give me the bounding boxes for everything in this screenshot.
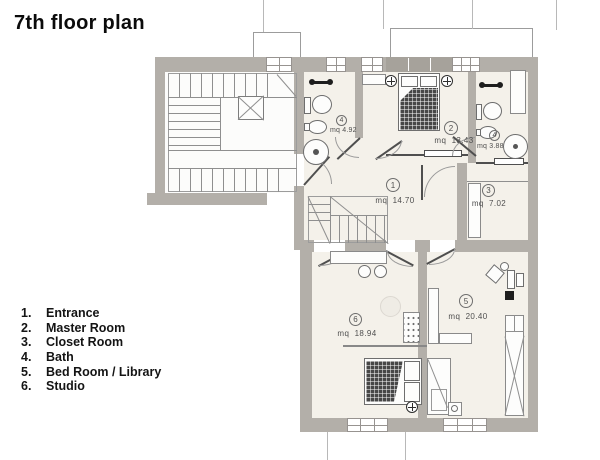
legend-item: 5. Bed Room / Library	[21, 364, 161, 379]
pillow-icon	[420, 76, 437, 87]
pillow-icon	[401, 76, 418, 87]
stair-tread	[190, 73, 191, 97]
bidet-icon	[308, 120, 327, 134]
terrace-railing	[390, 28, 533, 58]
balcony-door-mullion	[430, 58, 431, 71]
ceiling-lamp-icon	[385, 75, 397, 87]
floor-plan-page: 1 mq 14.70 2 mq 13.43 3 mq 7.02 4 mq 4.9…	[0, 0, 600, 460]
stair-tread	[168, 137, 220, 138]
stair-tread	[223, 168, 224, 192]
stair-tread	[256, 73, 257, 97]
stair-tread	[212, 73, 213, 97]
sink-drain-icon	[513, 144, 518, 149]
wall	[155, 72, 165, 205]
stair-tread	[234, 73, 235, 97]
stair-tread	[245, 168, 246, 192]
room-area-label: mq 4.92	[330, 127, 356, 134]
window-mullion	[360, 419, 361, 431]
legend-item-label: Master Room	[46, 321, 125, 335]
wall	[312, 418, 528, 432]
stair-tread	[223, 73, 224, 97]
legend-item-number: 1.	[21, 306, 46, 320]
window-mullion	[336, 58, 337, 71]
toilet-icon	[476, 104, 482, 120]
legend-item-number: 5.	[21, 365, 46, 379]
stair-tread	[168, 121, 220, 122]
room-area-label: mq 20.40	[444, 312, 492, 321]
wall	[528, 57, 538, 432]
shower-drain-icon	[313, 149, 319, 155]
desk-icon	[343, 345, 427, 347]
partition-line	[476, 162, 494, 164]
window	[347, 418, 388, 432]
stair-landing-line	[168, 97, 297, 98]
stair-tread	[348, 215, 349, 243]
chair-icon	[374, 265, 387, 278]
cabinet-icon	[362, 74, 386, 85]
legend-item-number: 3.	[21, 335, 46, 349]
table-icon	[380, 296, 401, 317]
window-mullion	[470, 58, 471, 71]
toilet-icon	[304, 97, 311, 114]
room-area-label: mq 13.43	[432, 136, 476, 145]
dimension-line	[556, 0, 557, 30]
wall	[147, 193, 267, 205]
wall	[455, 240, 528, 252]
window	[443, 418, 487, 432]
wall	[457, 163, 467, 240]
room-area-label: mq 14.70	[371, 196, 419, 205]
bookshelf-icon	[439, 333, 472, 344]
window-mullion	[372, 58, 373, 71]
wall	[300, 243, 312, 432]
wall	[294, 186, 304, 250]
cabinet-icon	[330, 251, 387, 264]
stair-landing-line	[168, 150, 297, 151]
stair-tread	[234, 168, 235, 192]
stair-tread	[179, 168, 180, 192]
legend-item-label: Bath	[46, 350, 74, 364]
stool-icon	[451, 405, 458, 412]
window	[452, 57, 480, 72]
balcony-door	[386, 57, 452, 72]
window-mullion	[279, 58, 280, 71]
room-number-badge: 4	[489, 130, 500, 141]
towel-rail-icon	[327, 79, 333, 85]
stair-tread	[168, 105, 220, 106]
wall	[155, 57, 538, 72]
stair-tread	[168, 129, 220, 130]
wardrobe-shelf-line	[505, 331, 524, 332]
bookshelf-icon	[428, 288, 439, 344]
dimension-line	[472, 0, 473, 29]
towel-rail-icon	[479, 82, 485, 88]
window-mullion	[457, 419, 458, 431]
stair-tread	[366, 215, 367, 243]
desk-icon	[516, 273, 524, 287]
legend-item: 4. Bath	[21, 350, 161, 365]
legend-item-label: Bed Room / Library	[46, 365, 161, 379]
room-number-badge: 3	[482, 184, 495, 197]
legend-item-label: Studio	[46, 379, 85, 393]
toilet-icon	[483, 102, 502, 120]
stair-tread	[179, 73, 180, 97]
window-mullion	[461, 58, 462, 71]
towel-rail-icon	[497, 82, 503, 88]
floor-lamp-icon	[406, 401, 418, 413]
window-mullion	[374, 419, 375, 431]
wardrobe-shelf-line	[514, 315, 515, 331]
stair-tread	[168, 113, 220, 114]
stair-tread	[201, 168, 202, 192]
door-leaf	[421, 165, 423, 200]
stair-flight-divider	[220, 97, 221, 150]
room-number-badge: 6	[349, 313, 362, 326]
stair-tread	[308, 212, 330, 213]
dimension-line	[327, 432, 328, 460]
bidet-icon	[476, 129, 481, 136]
ceiling-lamp-icon	[441, 75, 453, 87]
radiator-icon	[403, 312, 420, 343]
towel-rail-icon	[309, 79, 315, 85]
pillow-icon	[404, 382, 420, 402]
legend-item-label: Closet Room	[46, 335, 123, 349]
wall	[415, 240, 430, 252]
stair-tread	[375, 215, 376, 243]
bidet-icon	[304, 123, 310, 131]
dimension-line	[383, 0, 384, 29]
legend-item-label: Entrance	[46, 306, 100, 320]
legend-item-number: 6.	[21, 379, 46, 393]
room-number-badge: 4	[336, 115, 347, 126]
stair-flight-divider	[330, 196, 331, 243]
wardrobe-icon	[468, 183, 481, 238]
legend-item: 3. Closet Room	[21, 335, 161, 350]
room-area-label: mq 3.88	[477, 143, 503, 150]
legend-item-number: 2.	[21, 321, 46, 335]
page-title: 7th floor plan	[14, 12, 145, 35]
dimension-line	[263, 0, 264, 32]
stair-tread	[278, 168, 279, 192]
dimension-line	[405, 432, 406, 460]
sliding-door	[494, 158, 524, 165]
room-number-badge: 1	[386, 178, 400, 192]
legend-item-number: 4.	[21, 350, 46, 364]
stair-tread	[267, 73, 268, 97]
room-area-label: mq 18.94	[333, 329, 381, 338]
window-mullion	[472, 419, 473, 431]
legend: 1. Entrance 2. Master Room 3. Closet Roo…	[21, 306, 161, 394]
stair-tread	[339, 215, 340, 243]
stair-tread	[212, 168, 213, 192]
terrace-railing	[253, 32, 301, 58]
legend-item: 1. Entrance	[21, 306, 161, 321]
stair-tread	[256, 168, 257, 192]
pillow-icon	[404, 361, 420, 381]
desk-icon	[507, 270, 515, 289]
partition-line	[524, 162, 528, 164]
room-number-badge: 5	[459, 294, 473, 308]
room-area-label: mq 7.02	[470, 199, 508, 208]
legend-item: 6. Studio	[21, 379, 161, 394]
desk-lamp-icon	[505, 291, 514, 300]
stair-tread	[201, 73, 202, 97]
partition-line	[467, 181, 528, 182]
stair-tread	[190, 168, 191, 192]
stair-tread	[168, 145, 220, 146]
niche-shaft	[510, 70, 526, 114]
balcony-door-mullion	[408, 58, 409, 71]
chair-icon	[358, 265, 371, 278]
toilet-icon	[312, 95, 332, 114]
room-number-badge: 2	[444, 121, 458, 135]
stair-tread	[267, 168, 268, 192]
stair-tread	[245, 73, 246, 97]
legend-item: 2. Master Room	[21, 321, 161, 336]
